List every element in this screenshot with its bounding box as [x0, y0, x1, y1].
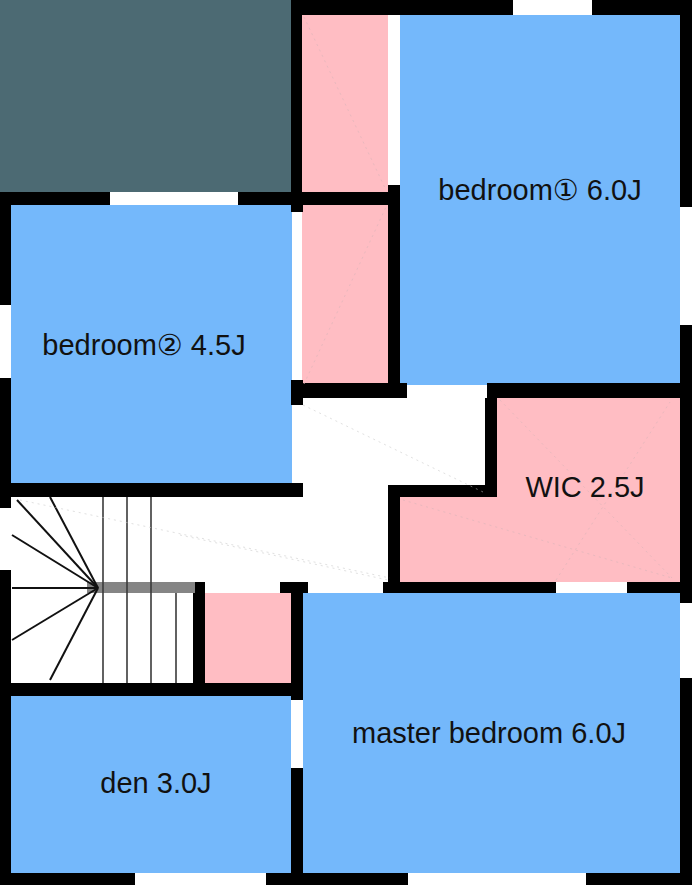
wall-exterior-bottom: [0, 873, 692, 885]
wall-master-north-mid: [383, 582, 556, 593]
wall-wic-west-lower: [388, 497, 400, 583]
stairs-handrail: [87, 582, 195, 593]
window-master-bottom: [408, 873, 586, 885]
wall-stairs-east: [193, 582, 205, 696]
window-master-right: [680, 603, 692, 678]
wall-master-north-right: [627, 582, 692, 593]
room-label-bedroom2: bedroom② 4.5J: [42, 328, 245, 362]
window-den-bottom: [135, 873, 266, 885]
wall-bedroom2-east-top: [291, 205, 303, 212]
window-bedroom2-left: [0, 305, 11, 378]
wall-bedroom1-south-right: [487, 383, 692, 398]
wall-bedroom2-south: [0, 483, 303, 497]
wall-bedroom1-south-left: [291, 383, 407, 398]
window-bedroom1-top: [513, 0, 592, 15]
wall-wic-west-upper: [485, 398, 497, 497]
closet-bedroom2: [302, 205, 388, 386]
wall-wic-step: [388, 485, 497, 497]
wall-master-west-lower: [291, 768, 303, 873]
room-label-master-bedroom: master bedroom 6.0J: [352, 717, 626, 750]
window-bedroom1-right: [680, 207, 692, 325]
wall-den-north: [0, 683, 303, 696]
closet-bedroom1: [302, 15, 388, 192]
window-stairs-left: [0, 508, 11, 570]
void-area: [0, 0, 291, 192]
wall-exterior-top: [291, 0, 692, 15]
room-label-den: den 3.0J: [100, 767, 211, 800]
wic-lower-area: [400, 497, 680, 582]
floor-plan: bedroom① 6.0J bedroom② 4.5J WIC 2.5J mas…: [0, 0, 692, 885]
room-label-bedroom1: bedroom① 6.0J: [438, 173, 641, 207]
wall-void-east: [291, 0, 302, 192]
room-label-wic: WIC 2.5J: [525, 471, 644, 504]
wall-closet-east: [388, 185, 400, 390]
wall-closet-hall-nub: [280, 582, 303, 593]
closet-hall: [205, 593, 293, 683]
window-bedroom2-top: [110, 192, 238, 205]
wall-exterior-right: [680, 0, 692, 885]
